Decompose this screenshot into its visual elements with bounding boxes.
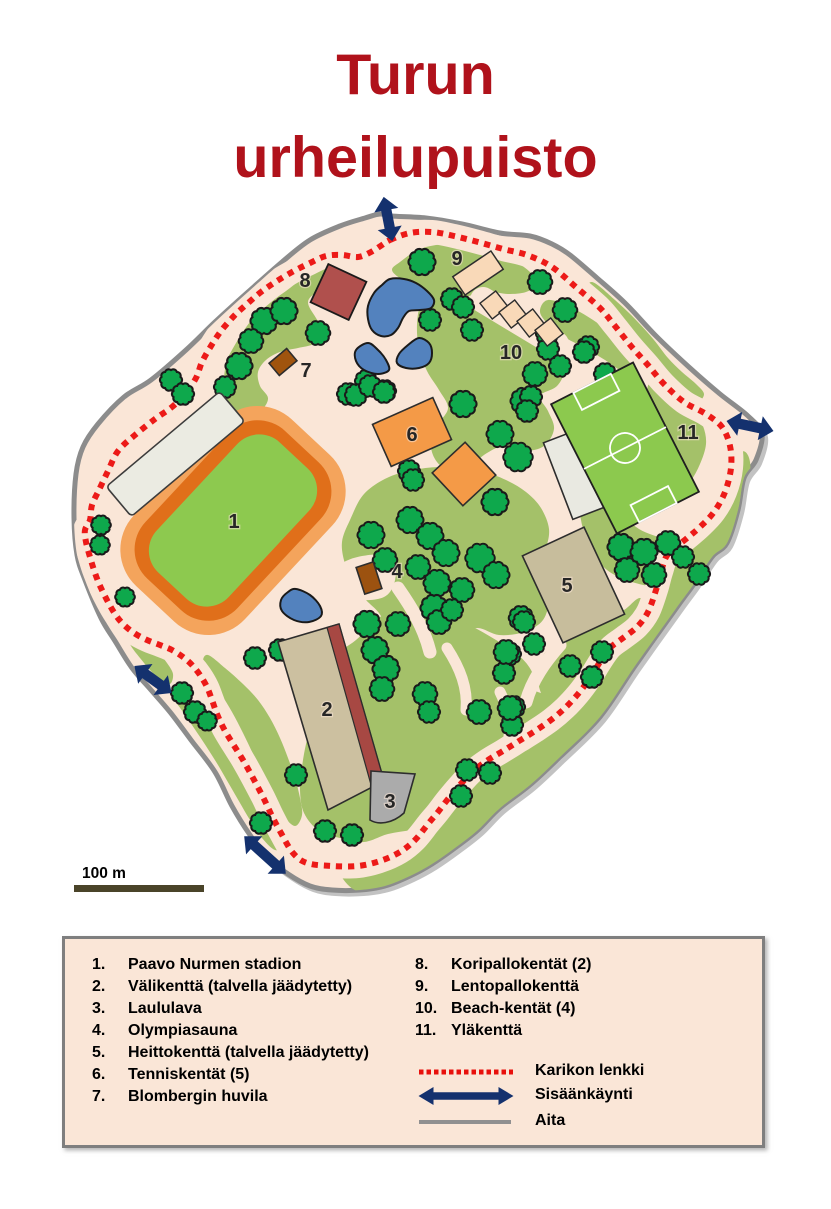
svg-text:5: 5 [561, 575, 572, 597]
svg-text:7: 7 [300, 360, 311, 382]
svg-text:11: 11 [677, 422, 698, 444]
svg-text:9: 9 [451, 248, 462, 270]
svg-text:8: 8 [299, 270, 310, 292]
svg-text:4: 4 [391, 561, 403, 583]
svg-text:10: 10 [500, 342, 522, 364]
svg-text:2: 2 [321, 699, 332, 721]
svg-text:6: 6 [406, 424, 417, 446]
svg-text:100 m: 100 m [82, 865, 126, 882]
svg-text:3: 3 [384, 791, 395, 813]
svg-text:1: 1 [228, 511, 239, 533]
